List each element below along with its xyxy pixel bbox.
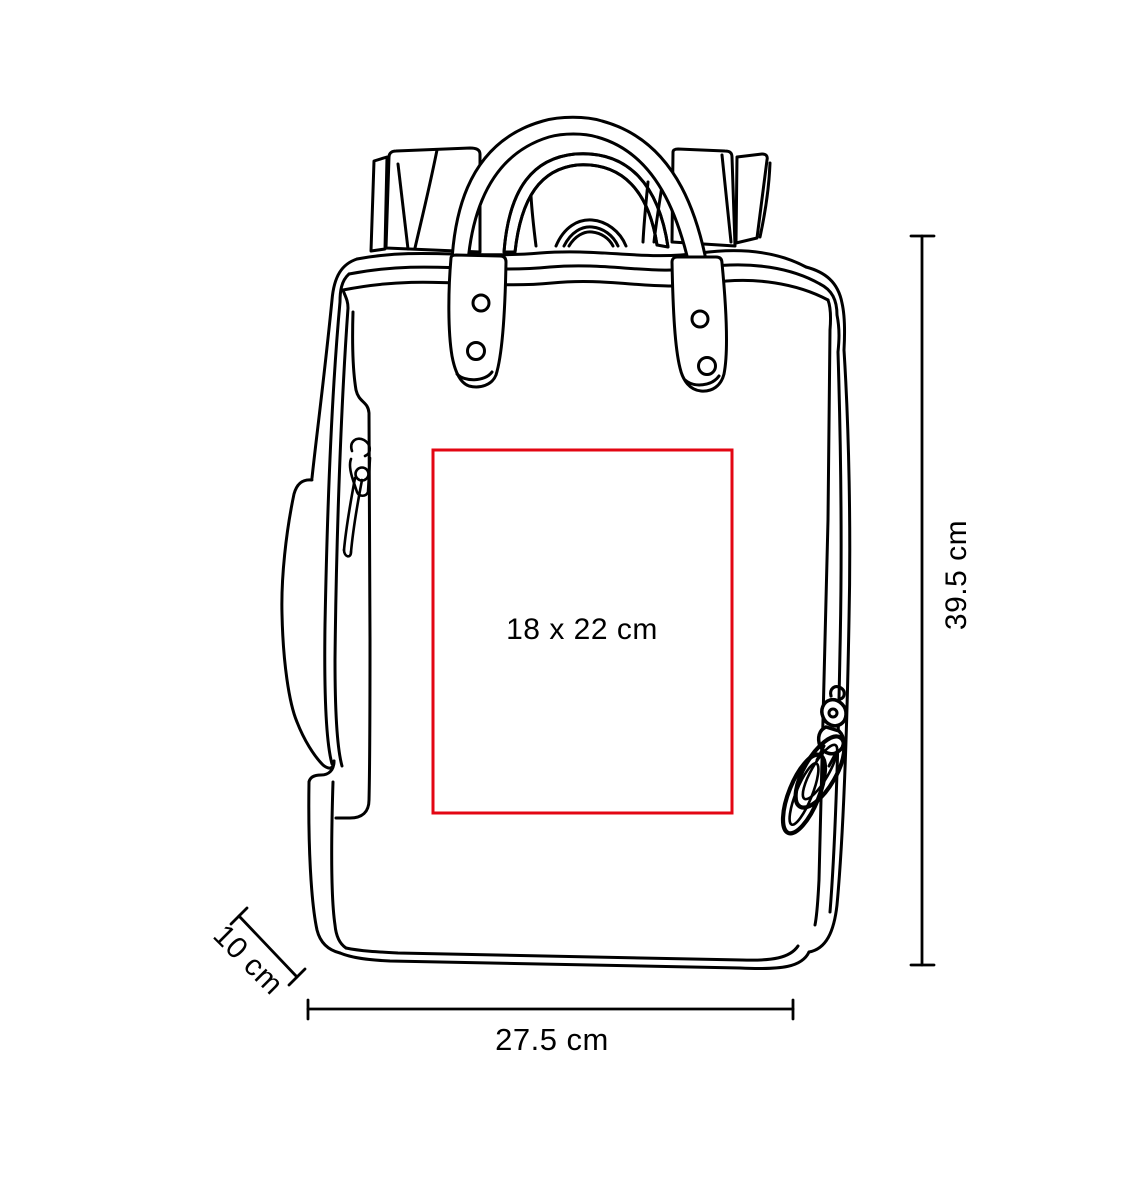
dimension-height-line (911, 236, 934, 965)
height-dimension-label: 39.5 cm (940, 520, 973, 630)
print-area-label: 18 x 22 cm (506, 613, 658, 646)
diagram-canvas: 18 x 22 cm 39.5 cm 27.5 cm 10 cm (0, 0, 1134, 1200)
dimension-labels: 39.5 cm 27.5 cm 10 cm (207, 520, 973, 1057)
width-dimension-label: 27.5 cm (495, 1022, 609, 1057)
left-side-gusset (309, 259, 357, 953)
top-edge (343, 251, 828, 300)
rivet (692, 311, 708, 327)
depth-dimension-label: 10 cm (207, 918, 290, 1001)
dimension-width-line (308, 1000, 793, 1019)
rivet (699, 358, 716, 375)
rivet (473, 295, 489, 311)
bottom-edge (340, 946, 809, 969)
backpack-dimension-diagram: 18 x 22 cm 39.5 cm 27.5 cm 10 cm (0, 0, 1134, 1200)
print-area: 18 x 22 cm (433, 450, 732, 813)
rivet (468, 343, 485, 360)
handle-straps (449, 255, 727, 391)
backpack-line-art (282, 117, 854, 968)
rear-handle (504, 154, 668, 252)
pocket-zipper-slider (344, 439, 370, 557)
top-center-dome (556, 220, 626, 246)
right-side-edge (806, 267, 850, 952)
